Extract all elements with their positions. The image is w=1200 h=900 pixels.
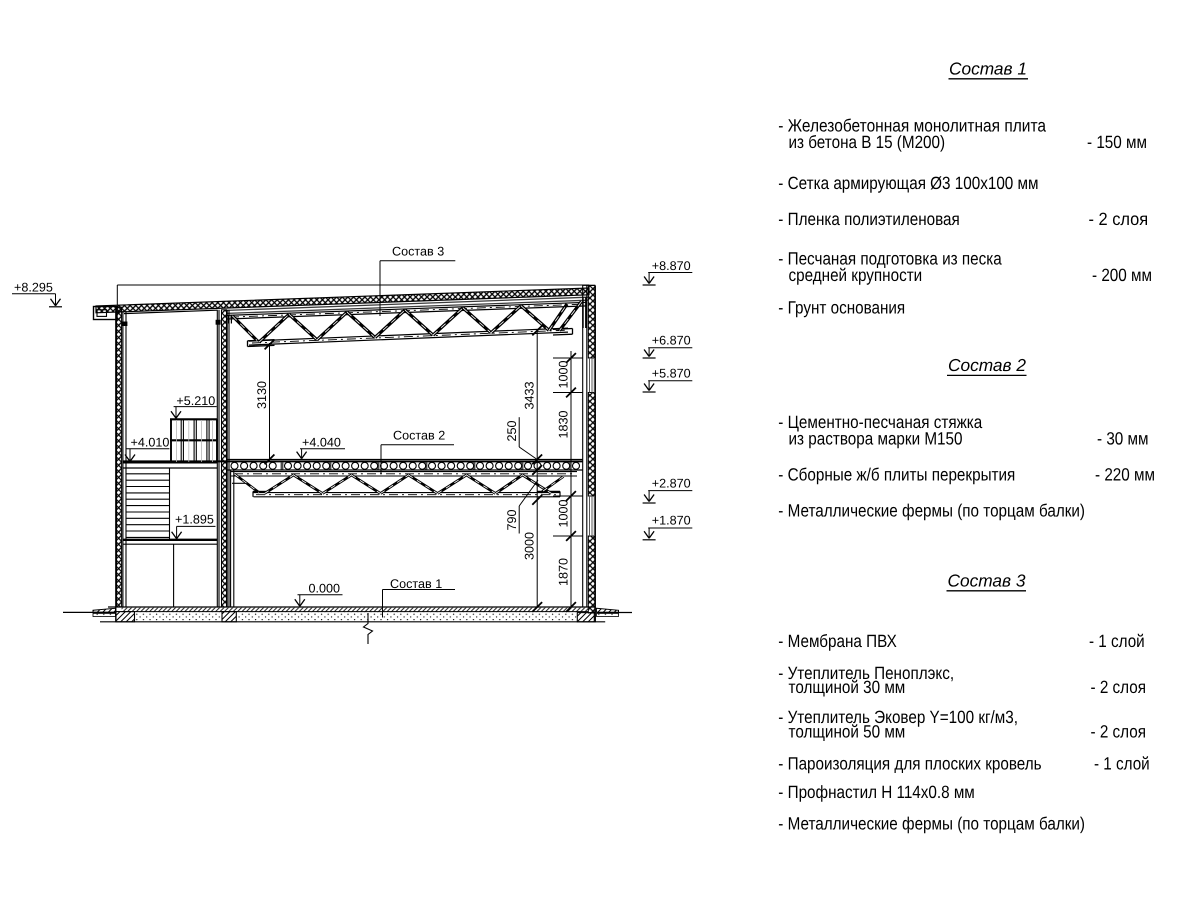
svg-text:+5.870: +5.870 bbox=[652, 367, 691, 381]
svg-text:Состав 3: Состав 3 bbox=[392, 245, 444, 259]
svg-text:- 30 мм: - 30 мм bbox=[1097, 429, 1149, 449]
svg-text:0.000: 0.000 bbox=[309, 582, 341, 596]
svg-text:1870: 1870 bbox=[557, 558, 571, 586]
svg-text:1000: 1000 bbox=[557, 360, 571, 388]
svg-text:из бетона В 15 (М200): из бетона В 15 (М200) bbox=[789, 132, 946, 152]
svg-text:- 2 слоя: - 2 слоя bbox=[1091, 722, 1147, 742]
svg-text:+4.010: +4.010 bbox=[131, 436, 170, 450]
svg-text:- 220 мм: - 220 мм bbox=[1095, 465, 1155, 485]
svg-text:- Сборные ж/б плиты перекрытия: - Сборные ж/б плиты перекрытия bbox=[778, 465, 1015, 485]
svg-text:средней крупности: средней крупности bbox=[789, 265, 923, 285]
svg-text:Состав 2: Состав 2 bbox=[393, 429, 445, 443]
svg-text:из раствора марки М150: из раствора марки М150 bbox=[789, 429, 963, 449]
svg-text:- 2 слоя: - 2 слоя bbox=[1091, 677, 1147, 697]
svg-text:Состав 1: Состав 1 bbox=[949, 59, 1027, 79]
svg-text:+1.870: +1.870 bbox=[652, 514, 691, 528]
svg-text:- Профнастил Н 114х0.8 мм: - Профнастил Н 114х0.8 мм bbox=[778, 782, 975, 802]
svg-text:- 150 мм: - 150 мм bbox=[1087, 132, 1147, 152]
svg-text:толщиной 50 мм: толщиной 50 мм bbox=[789, 722, 906, 742]
svg-text:- Пленка полиэтиленовая: - Пленка полиэтиленовая bbox=[778, 209, 960, 229]
svg-text:- Мембрана ПВХ: - Мембрана ПВХ bbox=[778, 631, 897, 651]
svg-text:толщиной 30 мм: толщиной 30 мм bbox=[789, 677, 906, 697]
svg-text:250: 250 bbox=[505, 420, 519, 441]
svg-text:- 1 слой: - 1 слой bbox=[1089, 631, 1145, 651]
svg-text:Состав 2: Состав 2 bbox=[948, 355, 1026, 375]
svg-text:+1.895: +1.895 bbox=[175, 512, 214, 526]
svg-text:+8.295: +8.295 bbox=[14, 281, 53, 295]
svg-text:1830: 1830 bbox=[557, 410, 571, 438]
svg-text:3130: 3130 bbox=[255, 381, 269, 409]
svg-text:- Грунт основания: - Грунт основания bbox=[778, 298, 905, 318]
svg-text:3433: 3433 bbox=[523, 381, 537, 409]
svg-text:+2.870: +2.870 bbox=[652, 476, 691, 490]
svg-text:+8.870: +8.870 bbox=[652, 259, 691, 273]
svg-text:1000: 1000 bbox=[557, 499, 571, 527]
svg-text:- Металлические фермы (по торц: - Металлические фермы (по торцам балки) bbox=[778, 814, 1085, 834]
svg-text:3000: 3000 bbox=[523, 532, 537, 560]
svg-text:+6.870: +6.870 bbox=[652, 334, 691, 348]
svg-text:- 200 мм: - 200 мм bbox=[1092, 265, 1152, 285]
svg-text:Состав 3: Состав 3 bbox=[948, 571, 1026, 591]
svg-text:- Металлические фермы (по торц: - Металлические фермы (по торцам балки) bbox=[778, 500, 1085, 520]
svg-text:790: 790 bbox=[505, 509, 519, 530]
svg-text:+4.040: +4.040 bbox=[302, 436, 341, 450]
svg-text:- 2 слоя: - 2 слоя bbox=[1089, 209, 1149, 229]
svg-text:Состав 1: Состав 1 bbox=[390, 577, 442, 591]
svg-text:+5.210: +5.210 bbox=[176, 394, 215, 408]
svg-text:- 1 слой: - 1 слой bbox=[1094, 754, 1150, 774]
svg-text:- Сетка армирующая Ø3 100х100: - Сетка армирующая Ø3 100х100 мм bbox=[778, 173, 1038, 193]
svg-text:- Пароизоляция для плоских кро: - Пароизоляция для плоских кровель bbox=[778, 754, 1041, 774]
